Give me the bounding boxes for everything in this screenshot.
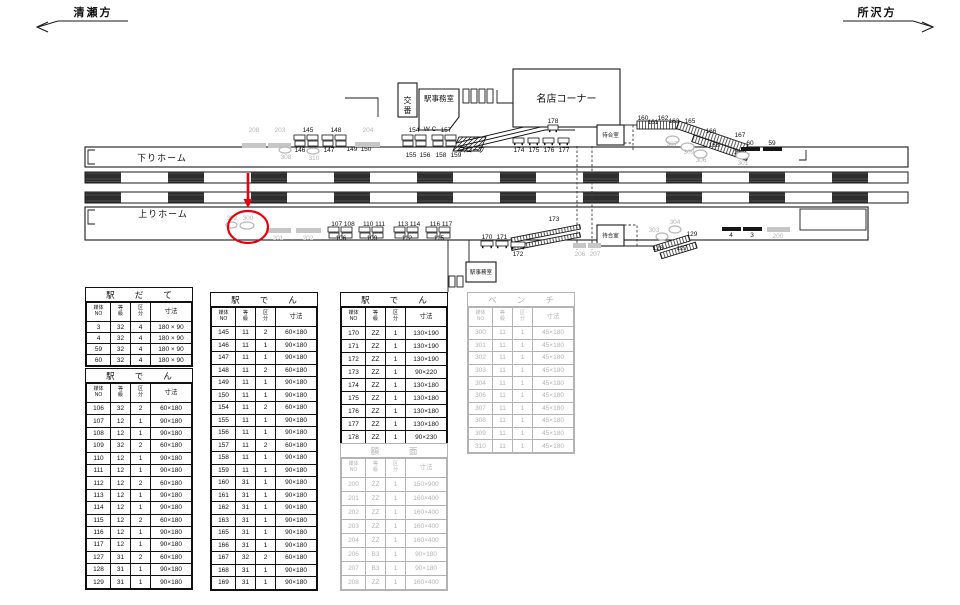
- sign-171: 171: [496, 234, 508, 248]
- sign-304: 304: [669, 219, 681, 233]
- table-row: 11212260×180: [87, 477, 192, 489]
- table-row: 11312190×180: [87, 489, 192, 501]
- sign-label-307: 307: [667, 141, 678, 148]
- column-header: 寸法: [151, 384, 192, 403]
- table-row: 11712190×180: [87, 539, 192, 551]
- sign-label-206: 206: [575, 251, 586, 258]
- table-header-row: 媒体NO等級区分寸法: [87, 384, 192, 403]
- table-row: 16331190×180: [212, 514, 317, 527]
- table-row: 60324180 × 90: [87, 355, 192, 366]
- sign-label-170: 170: [482, 234, 493, 241]
- sign-label-171: 171: [497, 234, 508, 241]
- table-row: 16831190×180: [212, 564, 317, 577]
- table-row: 16131190×180: [212, 489, 317, 502]
- table-title-eki-den-3: 駅でん: [341, 293, 447, 307]
- sign-label-115: 115: [434, 235, 445, 242]
- sign-175: 175: [528, 138, 540, 154]
- sign-303: 303: [649, 227, 668, 240]
- sign-label-204: 204: [363, 127, 374, 134]
- table-row: 16732260×180: [212, 552, 317, 565]
- table-row: 16231190×180: [212, 502, 317, 515]
- column-header: 媒体NO: [212, 308, 236, 327]
- table-row: 30811145×180: [469, 415, 574, 428]
- ticket-machine-2: [457, 276, 463, 287]
- table-row: 15811190×180: [212, 452, 317, 465]
- sign-label-166: 166: [706, 128, 717, 135]
- column-header: 寸法: [533, 308, 574, 327]
- sign-label-109: 109: [367, 235, 378, 242]
- sign-116 117: 116 117: [430, 221, 453, 228]
- sign-label-スロープ: スロープ: [459, 146, 485, 154]
- table-row: 11012190×180: [87, 452, 192, 464]
- spec-table-eki-den-2: 駅でん媒体NO等級区分寸法14511260×18014611190×180147…: [210, 292, 318, 591]
- sign-label-303: 303: [649, 227, 660, 234]
- table-row: 30011145×180: [469, 327, 574, 340]
- sign-label-306: 306: [696, 157, 707, 164]
- column-header: 等級: [236, 308, 256, 327]
- sign-158: 158: [436, 152, 447, 159]
- column-header: 等級: [493, 308, 513, 327]
- sign-label-172: 172: [513, 251, 524, 258]
- table-row: 14711190×180: [212, 352, 317, 365]
- table-row: 14811260×180: [212, 364, 317, 377]
- table-row: 178ZZ190×230: [342, 431, 447, 444]
- table-row: 208ZZ1160×400: [342, 576, 447, 590]
- down-platform-end-bracket: [799, 150, 806, 160]
- sign-label-4: 4: [729, 232, 733, 239]
- sign-200: 200: [767, 227, 790, 240]
- sign-スロープ: スロープ: [459, 146, 485, 154]
- track-lower: [85, 192, 908, 203]
- sign-308: 308: [279, 147, 292, 161]
- column-header: 区分: [131, 303, 151, 322]
- sign-label-308: 308: [281, 154, 292, 161]
- table-title-bench: ベンチ: [468, 293, 574, 307]
- column-header: 媒体NO: [87, 384, 111, 403]
- column-header: 寸法: [406, 308, 447, 327]
- sign-label-106: 106: [336, 235, 347, 242]
- sign-label-110 111: 110 111: [363, 221, 385, 228]
- sign-label-203: 203: [275, 127, 286, 134]
- sign-label-174: 174: [514, 147, 525, 154]
- table-title-eki-date: 駅だて: [86, 288, 192, 302]
- table-row: 171ZZ1130×190: [342, 340, 447, 353]
- sign-128: 128: [653, 245, 664, 252]
- table-row: 206B3190×180: [342, 548, 447, 562]
- direction-right: 所沢方: [843, 5, 933, 32]
- column-header: 寸法: [151, 303, 192, 322]
- sign-label-60: 60: [746, 140, 754, 147]
- table-row: 12831190×180: [87, 564, 192, 576]
- sign-174: 174: [513, 138, 525, 154]
- waiting-room-up-dashed: [624, 225, 637, 247]
- sign-label-107 108: 107 108: [331, 221, 355, 228]
- sign-127: 127: [677, 245, 688, 252]
- table-row: 14511260×180: [212, 327, 317, 340]
- sign-178: 178: [548, 118, 559, 132]
- building-waiting-room-down: 待合室: [597, 125, 624, 145]
- table-row: 170ZZ1130×190: [342, 327, 447, 340]
- table-row: 14611190×180: [212, 339, 317, 352]
- sign-203: 203: [268, 127, 291, 148]
- sign-115: 115: [434, 235, 445, 242]
- sign-label-154: 154: [409, 127, 420, 134]
- column-header: 等級: [111, 303, 131, 322]
- table-row: 15911190×180: [212, 464, 317, 477]
- column-header: 寸法: [406, 459, 447, 478]
- sign-109: 109: [367, 235, 378, 242]
- sign-166: 166: [706, 128, 717, 135]
- sign-label-176: 176: [544, 147, 555, 154]
- table-row: 30111145×180: [469, 339, 574, 352]
- sign-204: 204: [355, 127, 380, 147]
- sign-163: 163: [669, 118, 680, 125]
- sign-label-309: 309: [684, 149, 695, 156]
- direction-right-label: 所沢方: [858, 5, 897, 19]
- table-title-eki-den-2: 駅でん: [211, 293, 317, 307]
- building-label-meiten-corner: 名店コーナー: [537, 92, 597, 105]
- sign-label-167: 167: [735, 132, 746, 139]
- sign-label-148: 148: [331, 127, 342, 134]
- table-header-row: 媒体NO等級区分寸法: [469, 308, 574, 327]
- table-row: 16631190×180: [212, 539, 317, 552]
- spec-table-bench: ベンチ媒体NO等級区分寸法30011145×18030111145×180302…: [467, 292, 575, 454]
- sign-165: 165: [685, 118, 696, 125]
- sign-162: 162: [658, 115, 669, 122]
- track-upper: [85, 172, 908, 183]
- table-row: 30611145×180: [469, 389, 574, 402]
- table-row: 15511190×180: [212, 414, 317, 427]
- spec-table-eki-den-1: 駅でん媒体NO等級区分寸法10632260×18010712190×180108…: [85, 368, 193, 590]
- table-row: 201ZZ1160×400: [342, 492, 447, 506]
- sign-label-178: 178: [548, 118, 559, 125]
- table-row: 30311145×180: [469, 364, 574, 377]
- sign-129: 129: [687, 231, 698, 238]
- sign-label-208: 208: [249, 127, 260, 134]
- sign-145: 145: [294, 127, 318, 146]
- sign-156: 156: [420, 152, 431, 159]
- sign-176: 176: [543, 138, 555, 154]
- sign-label-146: 146: [295, 147, 306, 154]
- column-header: 区分: [513, 308, 533, 327]
- sign-148: 148: [322, 127, 346, 146]
- table-row: 11412190×180: [87, 502, 192, 514]
- table-row: 175ZZ1130×180: [342, 392, 447, 405]
- sign-label-173: 173: [549, 216, 560, 223]
- sign-label-310: 310: [309, 155, 320, 162]
- table-header-row: 媒体NO等級区分寸法: [342, 308, 447, 327]
- table-row: 30211145×180: [469, 352, 574, 365]
- table-row: 10632260×180: [87, 403, 192, 415]
- sign-107 108: 107 108: [331, 221, 355, 228]
- sign-label-300: 300: [243, 215, 254, 222]
- table-row: 12731260×180: [87, 551, 192, 563]
- sign-207: 207: [588, 243, 601, 258]
- sign-label-168: 168: [709, 142, 720, 149]
- sign-label-129: 129: [687, 231, 698, 238]
- sign-310: 310: [307, 148, 320, 162]
- sign-300: 300: [240, 215, 254, 229]
- building-label-waiting-room-down: 待合室: [602, 131, 619, 139]
- sign-208: 208: [242, 127, 266, 148]
- table-row: 16031190×180: [212, 477, 317, 490]
- sign-W C: W C: [424, 126, 437, 133]
- spec-table-gakumen: 額面媒体NO等級区分寸法200ZZ1150×900201ZZ1160×40020…: [340, 443, 448, 591]
- building-station-office-down: 駅事務室: [419, 89, 459, 130]
- sign-label-207: 207: [590, 251, 601, 258]
- column-header: 媒体NO: [342, 308, 366, 327]
- sign-150: 150: [361, 146, 372, 153]
- sign-4: 4: [722, 227, 741, 239]
- column-header: 媒体NO: [87, 303, 111, 322]
- spec-table-eki-den-3: 駅でん媒体NO等級区分寸法170ZZ1130×190171ZZ1130×1901…: [340, 292, 448, 445]
- direction-left: 清瀬方: [37, 5, 128, 32]
- sign-label-301: 301: [738, 160, 749, 167]
- sign-173: 173: [549, 216, 560, 223]
- sign-168: 168: [709, 142, 720, 149]
- table-row: 15011190×180: [212, 389, 317, 402]
- table-row: 31011145×180: [469, 440, 574, 453]
- sign-label-157: 157: [441, 127, 452, 134]
- sign-label-145: 145: [303, 127, 314, 134]
- building-station-office-up: 駅事務室: [466, 262, 496, 282]
- column-header: 媒体NO: [469, 308, 493, 327]
- table-row: 30711145×180: [469, 402, 574, 415]
- table-row: 11512260×180: [87, 514, 192, 526]
- direction-left-arrow-shaft: [38, 21, 58, 27]
- sign-label-165: 165: [685, 118, 696, 125]
- table-row: 204ZZ1160×400: [342, 534, 447, 548]
- sign-167: 167: [735, 132, 746, 139]
- sign-label-116 117: 116 117: [430, 221, 453, 228]
- column-header: 区分: [131, 384, 151, 403]
- sign-label-163: 163: [669, 118, 680, 125]
- table-title-gakumen: 額面: [341, 444, 447, 458]
- down-platform-label: 下りホーム: [137, 153, 187, 163]
- column-header: 等級: [366, 459, 386, 478]
- table-row: 15611190×180: [212, 427, 317, 440]
- sign-label-200: 200: [773, 233, 784, 240]
- table-row: 10932260×180: [87, 440, 192, 452]
- building-label-station-office-down: 駅事務室: [424, 93, 454, 103]
- table-row: 15411260×180: [212, 402, 317, 415]
- sign-3: 3: [743, 227, 762, 239]
- table-header-row: 媒体NO等級区分寸法: [342, 459, 447, 478]
- sign-170: 170: [481, 234, 493, 248]
- sign-106: 106: [336, 235, 347, 242]
- waiting-room-down-dashed: [624, 125, 633, 152]
- sign-307: 307: [666, 136, 679, 148]
- sign-label-201: 201: [273, 235, 284, 242]
- sign-label-149: 149: [347, 146, 358, 153]
- sign-label-177: 177: [559, 147, 570, 154]
- down-platform: 下りホーム: [85, 147, 908, 167]
- kiosk-stalls: [463, 89, 513, 103]
- up-platform-end-room: [800, 209, 866, 230]
- sign-155: 155: [406, 152, 417, 159]
- sign-label-155: 155: [406, 152, 417, 159]
- column-header: 媒体NO: [342, 459, 366, 478]
- column-header: 等級: [366, 308, 386, 327]
- sign-label-127: 127: [677, 245, 688, 252]
- sign-59: 59: [763, 140, 782, 151]
- sign-146: 146: [295, 147, 306, 154]
- table-row: 200ZZ1150×900: [342, 478, 447, 492]
- table-row: 177ZZ1130×180: [342, 418, 447, 431]
- table-header-row: 媒体NO等級区分寸法: [87, 303, 192, 322]
- table-row: 30411145×180: [469, 377, 574, 390]
- table-row: 203ZZ1160×400: [342, 520, 447, 534]
- table-row: 174ZZ1130×180: [342, 379, 447, 392]
- table-row: 11612190×180: [87, 526, 192, 538]
- station-media-map: 清瀬方 所沢方 下りホーム 上りホーム: [0, 0, 960, 605]
- table-row: 172ZZ1130×190: [342, 353, 447, 366]
- sign-label-202: 202: [303, 235, 314, 242]
- sign-110 111: 110 111: [363, 221, 385, 228]
- sign-206: 206: [573, 243, 586, 258]
- building-waiting-room-up: 待合室: [597, 225, 624, 246]
- sign-label-112: 112: [402, 235, 413, 242]
- column-header: 区分: [386, 308, 406, 327]
- up-platform-label: 上りホーム: [138, 209, 188, 219]
- table-row: 176ZZ1130×180: [342, 405, 447, 418]
- sign-301: 301: [736, 152, 749, 167]
- sign-label-113 114: 113 114: [398, 221, 421, 228]
- up-platform-left-bracket: [88, 210, 95, 224]
- down-platform-left-bracket: [88, 150, 95, 164]
- table-row: 3324180 × 90: [87, 322, 192, 333]
- sign-label-162: 162: [658, 115, 669, 122]
- sign-label-59: 59: [768, 140, 776, 147]
- sign-label-175: 175: [529, 147, 540, 154]
- table-row: 4324180 × 90: [87, 333, 192, 344]
- building-label-waiting-room-up: 待合室: [602, 231, 619, 239]
- sign-label-W C: W C: [424, 126, 437, 133]
- column-header: 区分: [256, 308, 276, 327]
- column-header: 寸法: [276, 308, 317, 327]
- table-row: 207B3190×180: [342, 562, 447, 576]
- building-meiten-corner: 名店コーナー: [513, 69, 620, 127]
- table-row: 10812190×180: [87, 427, 192, 439]
- table-title-eki-den-1: 駅でん: [86, 369, 192, 383]
- table-row: 16531190×180: [212, 527, 317, 540]
- sign-label-150: 150: [361, 146, 372, 153]
- table-row: 173ZZ190×220: [342, 366, 447, 379]
- table-row: 15711260×180: [212, 439, 317, 452]
- sign-label-158: 158: [436, 152, 447, 159]
- table-row: 10712190×180: [87, 415, 192, 427]
- sign-306: 306: [694, 150, 707, 164]
- column-header: 区分: [386, 459, 406, 478]
- sign-label-156: 156: [420, 152, 431, 159]
- table-row: 202ZZ1160×400: [342, 506, 447, 520]
- sign-112: 112: [402, 235, 413, 242]
- table-row: 30911145×180: [469, 427, 574, 440]
- spec-table-eki-date: 駅だて媒体NO等級区分寸法3324180 × 904324180 × 90593…: [85, 287, 193, 367]
- sign-113 114: 113 114: [398, 221, 421, 228]
- table-row: 16931190×180: [212, 577, 317, 590]
- sign-label-3: 3: [750, 232, 754, 239]
- sign-label-128: 128: [653, 245, 664, 252]
- direction-left-label: 清瀬方: [74, 5, 113, 19]
- fence-line: [345, 98, 378, 117]
- sign-label-147: 147: [324, 147, 335, 154]
- ticket-machine-1: [449, 276, 455, 287]
- sign-147: 147: [324, 147, 335, 154]
- sign-149: 149: [347, 146, 358, 153]
- table-row: 11112190×180: [87, 464, 192, 476]
- table-row: 12931190×180: [87, 576, 192, 588]
- table-row: 14911190×180: [212, 377, 317, 390]
- sign-177: 177: [558, 138, 570, 154]
- column-header: 等級: [111, 384, 131, 403]
- building-label-station-office-up: 駅事務室: [470, 268, 493, 276]
- table-header-row: 媒体NO等級区分寸法: [212, 308, 317, 327]
- sign-label-304: 304: [670, 219, 681, 226]
- building-koban: 交番: [398, 83, 417, 117]
- sign-309: 309: [681, 143, 695, 156]
- table-row: 59324180 × 90: [87, 344, 192, 355]
